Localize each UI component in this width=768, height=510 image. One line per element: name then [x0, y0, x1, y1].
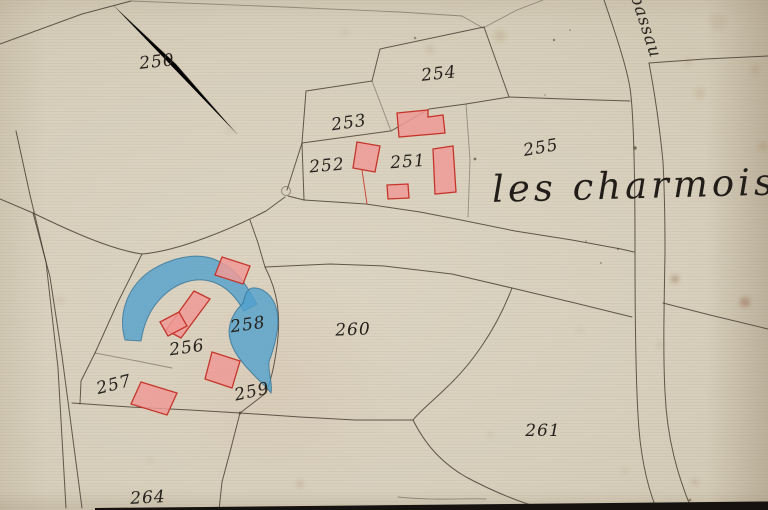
parcel-label-261: 261	[525, 421, 560, 441]
parcel-label-251: 251	[390, 151, 427, 173]
map-drawing	[0, 0, 768, 510]
boundary-lines	[0, 0, 768, 510]
place-name-label: les charmois.	[491, 160, 768, 211]
parcel-label-250: 250	[138, 50, 175, 74]
parcel-label-264: 264	[130, 487, 166, 509]
parcel-label-260: 260	[335, 319, 371, 340]
parcel-label-252: 252	[308, 154, 345, 177]
bottom-scan-edge	[95, 502, 768, 510]
parcel-label-254: 254	[420, 62, 457, 86]
cadastral-map: 250 253 252 251 254 255 256 257 258 259 …	[0, 0, 768, 510]
